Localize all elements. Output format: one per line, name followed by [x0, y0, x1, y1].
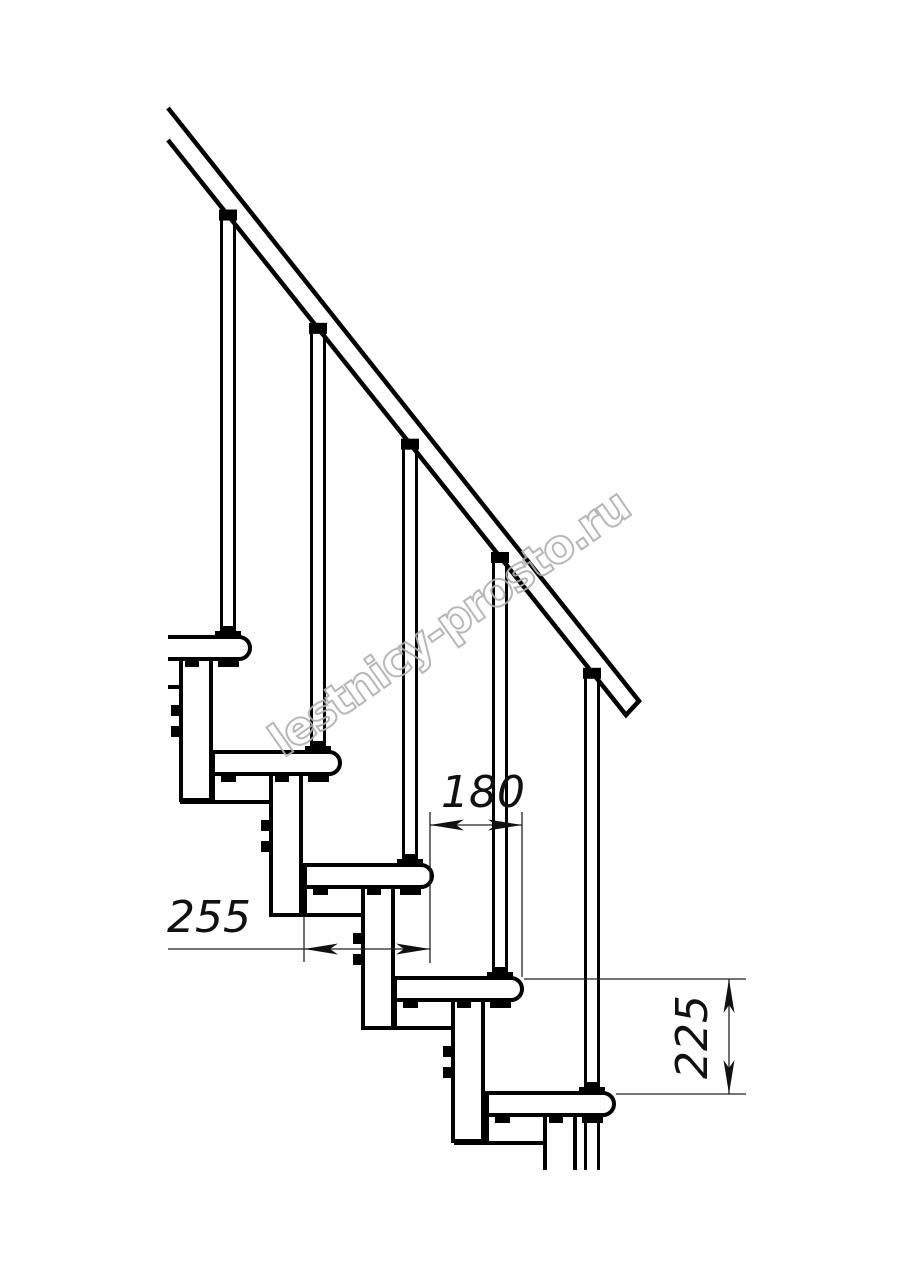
staircase-drawing: 180255225lestnicy-prosto.ru — [0, 0, 914, 1280]
column-bolt — [353, 954, 363, 965]
drawing-canvas: 180255225lestnicy-prosto.ru — [0, 0, 914, 1280]
tread-bolt — [275, 773, 289, 782]
column-bolt — [261, 820, 271, 831]
tread — [395, 978, 522, 1000]
column-bolt — [443, 1067, 453, 1078]
dimension-180: 180 — [430, 767, 525, 977]
support-column — [453, 1000, 483, 1141]
tread-bolt — [549, 1114, 563, 1123]
baluster-base — [584, 1082, 600, 1087]
baluster-base — [397, 859, 423, 865]
baluster-base — [492, 967, 508, 972]
tread — [168, 637, 250, 659]
tread-bolt — [495, 1114, 510, 1123]
baluster-base — [579, 1087, 605, 1093]
dimension-label-225: 225 — [667, 995, 718, 1079]
tread-bolt — [367, 886, 381, 895]
column-bolt — [443, 1046, 453, 1057]
tread — [487, 1093, 614, 1115]
support-column — [271, 774, 301, 915]
step-module-1 — [168, 210, 250, 800]
tread — [213, 752, 340, 774]
baluster-base — [402, 854, 418, 859]
support-column — [363, 887, 393, 1028]
baluster-rail-connector — [401, 439, 419, 450]
step-module-2 — [180, 323, 340, 915]
baluster — [215, 210, 241, 637]
tread-bolt — [218, 658, 239, 667]
tread-bolt — [185, 658, 199, 667]
tread-bolt — [313, 886, 328, 895]
dimension-225: 225 — [524, 979, 746, 1094]
tread-bolt — [221, 773, 236, 782]
column-bolt — [171, 705, 181, 716]
dimension-label-255: 255 — [167, 892, 251, 943]
tread-bolt — [490, 999, 511, 1008]
column-bolt — [261, 841, 271, 852]
baluster-rail-connector — [219, 210, 237, 221]
tread-bolt — [308, 773, 329, 782]
column-bolt — [171, 726, 181, 737]
baluster-rail-connector — [309, 323, 327, 334]
baluster-base — [220, 626, 236, 631]
dimension-label-180: 180 — [441, 767, 525, 818]
baluster-base — [215, 631, 241, 637]
support-column — [181, 659, 211, 800]
watermark-text: lestnicy-prosto.ru — [259, 479, 639, 768]
tread-bolt — [400, 886, 421, 895]
column-bolt — [353, 933, 363, 944]
tread-bolt — [403, 999, 418, 1008]
tread-bolt — [457, 999, 471, 1008]
baluster-base — [487, 972, 513, 978]
tread — [305, 865, 432, 887]
baluster-rail-connector — [583, 668, 601, 679]
